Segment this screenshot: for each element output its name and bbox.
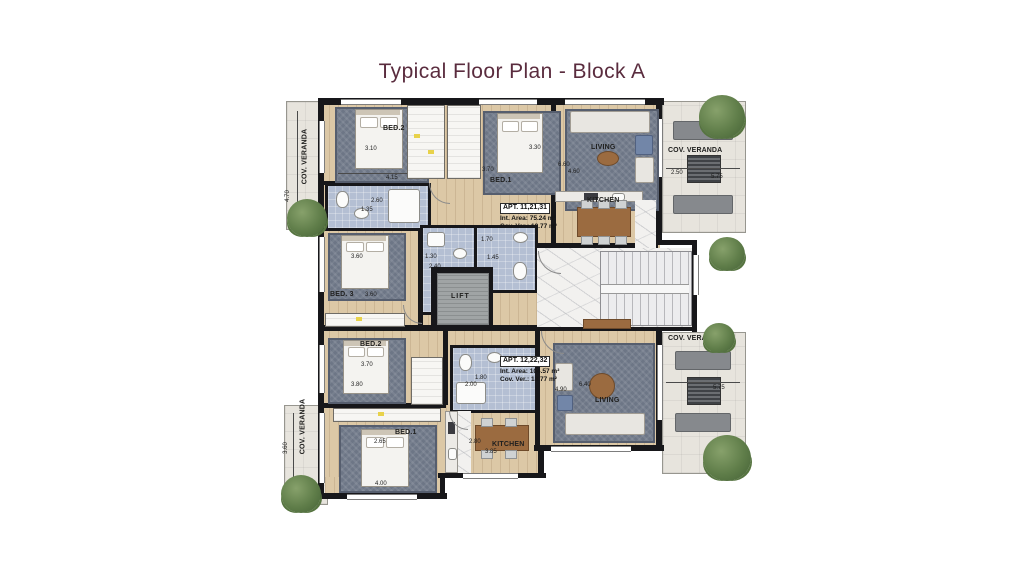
tree xyxy=(703,435,751,481)
dim-5-75-b: 5.75 xyxy=(713,385,725,391)
dim-4-60: 4.60 xyxy=(568,169,580,175)
bathtub xyxy=(388,189,420,223)
coffee-table xyxy=(597,151,619,166)
tree xyxy=(281,475,321,513)
window-bottom-1 xyxy=(347,494,417,500)
room-label-bed3: BED. 3 xyxy=(330,291,354,298)
pouf-blue xyxy=(557,395,573,411)
dim-2-80: 2.80 xyxy=(469,439,481,445)
armchair-blue xyxy=(635,135,653,155)
chair xyxy=(505,450,517,459)
toilet xyxy=(513,262,527,280)
dim-1-80: 1.80 xyxy=(475,375,487,381)
tree xyxy=(699,95,745,139)
chair xyxy=(481,418,493,427)
dimension-line xyxy=(297,111,298,209)
window-left-4 xyxy=(319,413,325,483)
apt-name-1: APT. 11,21,31 xyxy=(500,203,550,214)
dresser-bed1-apt2 xyxy=(333,408,441,422)
dim-1-45: 1.45 xyxy=(487,255,499,261)
veranda-label-top-right: COV. VERANDA xyxy=(668,147,722,154)
window-right-2 xyxy=(657,345,663,420)
stair-landing xyxy=(601,284,689,294)
apt-cov-ver-2: Cov. Ver.: 18.77 m² xyxy=(500,376,580,384)
tree xyxy=(703,323,735,353)
veranda-label-top-left: COV. VERANDA xyxy=(302,127,309,187)
dim-3-60-b: 3.60 xyxy=(365,292,377,298)
room-label-living-apt2: LIVING xyxy=(595,397,620,404)
bed-bed1-apt1 xyxy=(497,113,543,173)
room-label-bed1-apt1: BED.1 xyxy=(490,177,512,184)
sink xyxy=(453,248,467,259)
armchair xyxy=(635,157,654,183)
bed-bed1-apt2 xyxy=(361,429,409,487)
chair xyxy=(615,236,627,245)
dim-1-35: 1.35 xyxy=(361,207,373,213)
dim-5-75-a: 5.75 xyxy=(711,174,723,180)
dresser-accent xyxy=(378,412,384,416)
dim-4-70: 4.70 xyxy=(285,190,291,202)
dim-4-90: 4.90 xyxy=(555,387,567,393)
room-label-kitchen-apt1: KITCHEN xyxy=(587,197,620,204)
kitchen-marble-apt1 xyxy=(635,200,656,255)
toilet xyxy=(459,354,472,371)
dim-3-60-a: 3.60 xyxy=(351,254,363,260)
toilet xyxy=(336,191,349,208)
pillow xyxy=(386,437,404,448)
veranda-bench xyxy=(673,195,733,214)
page-title: Typical Floor Plan - Block A xyxy=(0,60,1024,84)
window-bottom-2 xyxy=(463,473,518,479)
floor-plan-page: Typical Floor Plan - Block A xyxy=(0,0,1024,576)
dim-3-30: 3.30 xyxy=(529,145,541,151)
dining-table-apt1 xyxy=(577,207,631,237)
veranda-label-bottom-left: COV. VERANDA xyxy=(300,397,307,457)
wardrobe-accent xyxy=(428,150,434,154)
sofa-living-apt2 xyxy=(565,413,645,435)
washing-machine xyxy=(427,232,445,247)
bed-bed3 xyxy=(341,235,389,289)
bed-bed2-apt1 xyxy=(355,109,403,169)
dim-4-00: 4.00 xyxy=(375,481,387,487)
dim-3-80: 3.80 xyxy=(351,382,363,388)
headboard xyxy=(356,110,400,115)
tree xyxy=(287,199,327,237)
dim-2-65: 2.65 xyxy=(374,439,386,445)
chair xyxy=(505,418,517,427)
window-top-3 xyxy=(565,99,645,105)
wall-stair-bump-top xyxy=(656,240,697,245)
floor-plan: BED.2 3.10 4.15 BED.1 3.30 3.70 2.60 1.3… xyxy=(283,95,748,509)
window-left-3 xyxy=(319,345,325,393)
room-label-bed2-apt2: BED.2 xyxy=(360,341,382,348)
pillow xyxy=(346,242,364,252)
wardrobe-1 xyxy=(407,105,445,179)
apt-name-2: APT. 12,22,32 xyxy=(500,356,550,367)
dim-2-00: 2.00 xyxy=(465,382,477,388)
staircase xyxy=(600,251,692,326)
dresser-bed3 xyxy=(325,313,405,327)
pillow xyxy=(502,121,519,132)
chair xyxy=(598,236,610,245)
apt-int-area-1: Int. Area: 75.24 m² xyxy=(500,215,578,223)
tree xyxy=(709,237,745,271)
dim-3-85: 3.85 xyxy=(485,449,497,455)
dim-3-10: 3.10 xyxy=(365,146,377,152)
headboard xyxy=(342,236,386,241)
dim-4-15: 4.15 xyxy=(386,175,398,181)
dim-2-60: 2.60 xyxy=(371,198,383,204)
window-top-2 xyxy=(479,99,537,105)
wall-bed2a2-right xyxy=(443,327,448,405)
hall-sideboard xyxy=(583,319,631,329)
dimension-line xyxy=(666,168,740,169)
window-left-2 xyxy=(319,237,325,292)
room-label-living-apt1: LIVING xyxy=(591,144,616,151)
apt-int-area-2: Int. Area: 104.57 m² xyxy=(500,368,580,376)
wardrobe-2 xyxy=(447,105,481,179)
room-label-lift: LIFT xyxy=(451,293,470,300)
wardrobe-bed2-apt2 xyxy=(411,357,443,405)
apt-info-box-2: APT. 12,22,32 Int. Area: 104.57 m² Cov. … xyxy=(500,348,580,384)
dim-6-40: 6.40 xyxy=(579,382,591,388)
pillow xyxy=(348,347,365,357)
kitchen-sink xyxy=(448,448,457,460)
window-stair xyxy=(693,255,699,295)
sofa-living-apt1 xyxy=(570,111,650,133)
dim-2-50: 2.50 xyxy=(671,170,683,176)
wardrobe-accent xyxy=(414,134,420,138)
dim-6-60: 6.60 xyxy=(558,162,570,168)
room-label-bed2-apt1: BED.2 xyxy=(383,125,405,132)
pillow xyxy=(366,242,384,252)
dim-1-70: 1.70 xyxy=(481,237,493,243)
pillow xyxy=(360,117,378,128)
dim-3-70-apt1: 3.70 xyxy=(482,167,494,173)
pillow xyxy=(521,121,538,132)
pillow xyxy=(367,347,384,357)
dim-3-70-apt2: 3.70 xyxy=(361,362,373,368)
dresser-accent xyxy=(356,317,362,321)
window-top-1 xyxy=(341,99,401,105)
dimension-line xyxy=(666,382,740,383)
window-left-1 xyxy=(319,121,325,173)
headboard xyxy=(498,114,540,119)
veranda-bench xyxy=(675,351,731,370)
dim-1-30: 1.30 xyxy=(425,254,437,260)
dim-3-60-c: 3.60 xyxy=(283,442,289,454)
chair xyxy=(581,236,593,245)
veranda-bench xyxy=(675,413,731,432)
bathroom-apt1 xyxy=(325,183,431,231)
room-label-kitchen-apt2: KITCHEN xyxy=(492,441,525,448)
window-bottom-3 xyxy=(551,446,631,452)
round-table xyxy=(589,373,615,399)
sink xyxy=(513,232,528,243)
room-label-bed1-apt2: BED.1 xyxy=(395,429,417,436)
